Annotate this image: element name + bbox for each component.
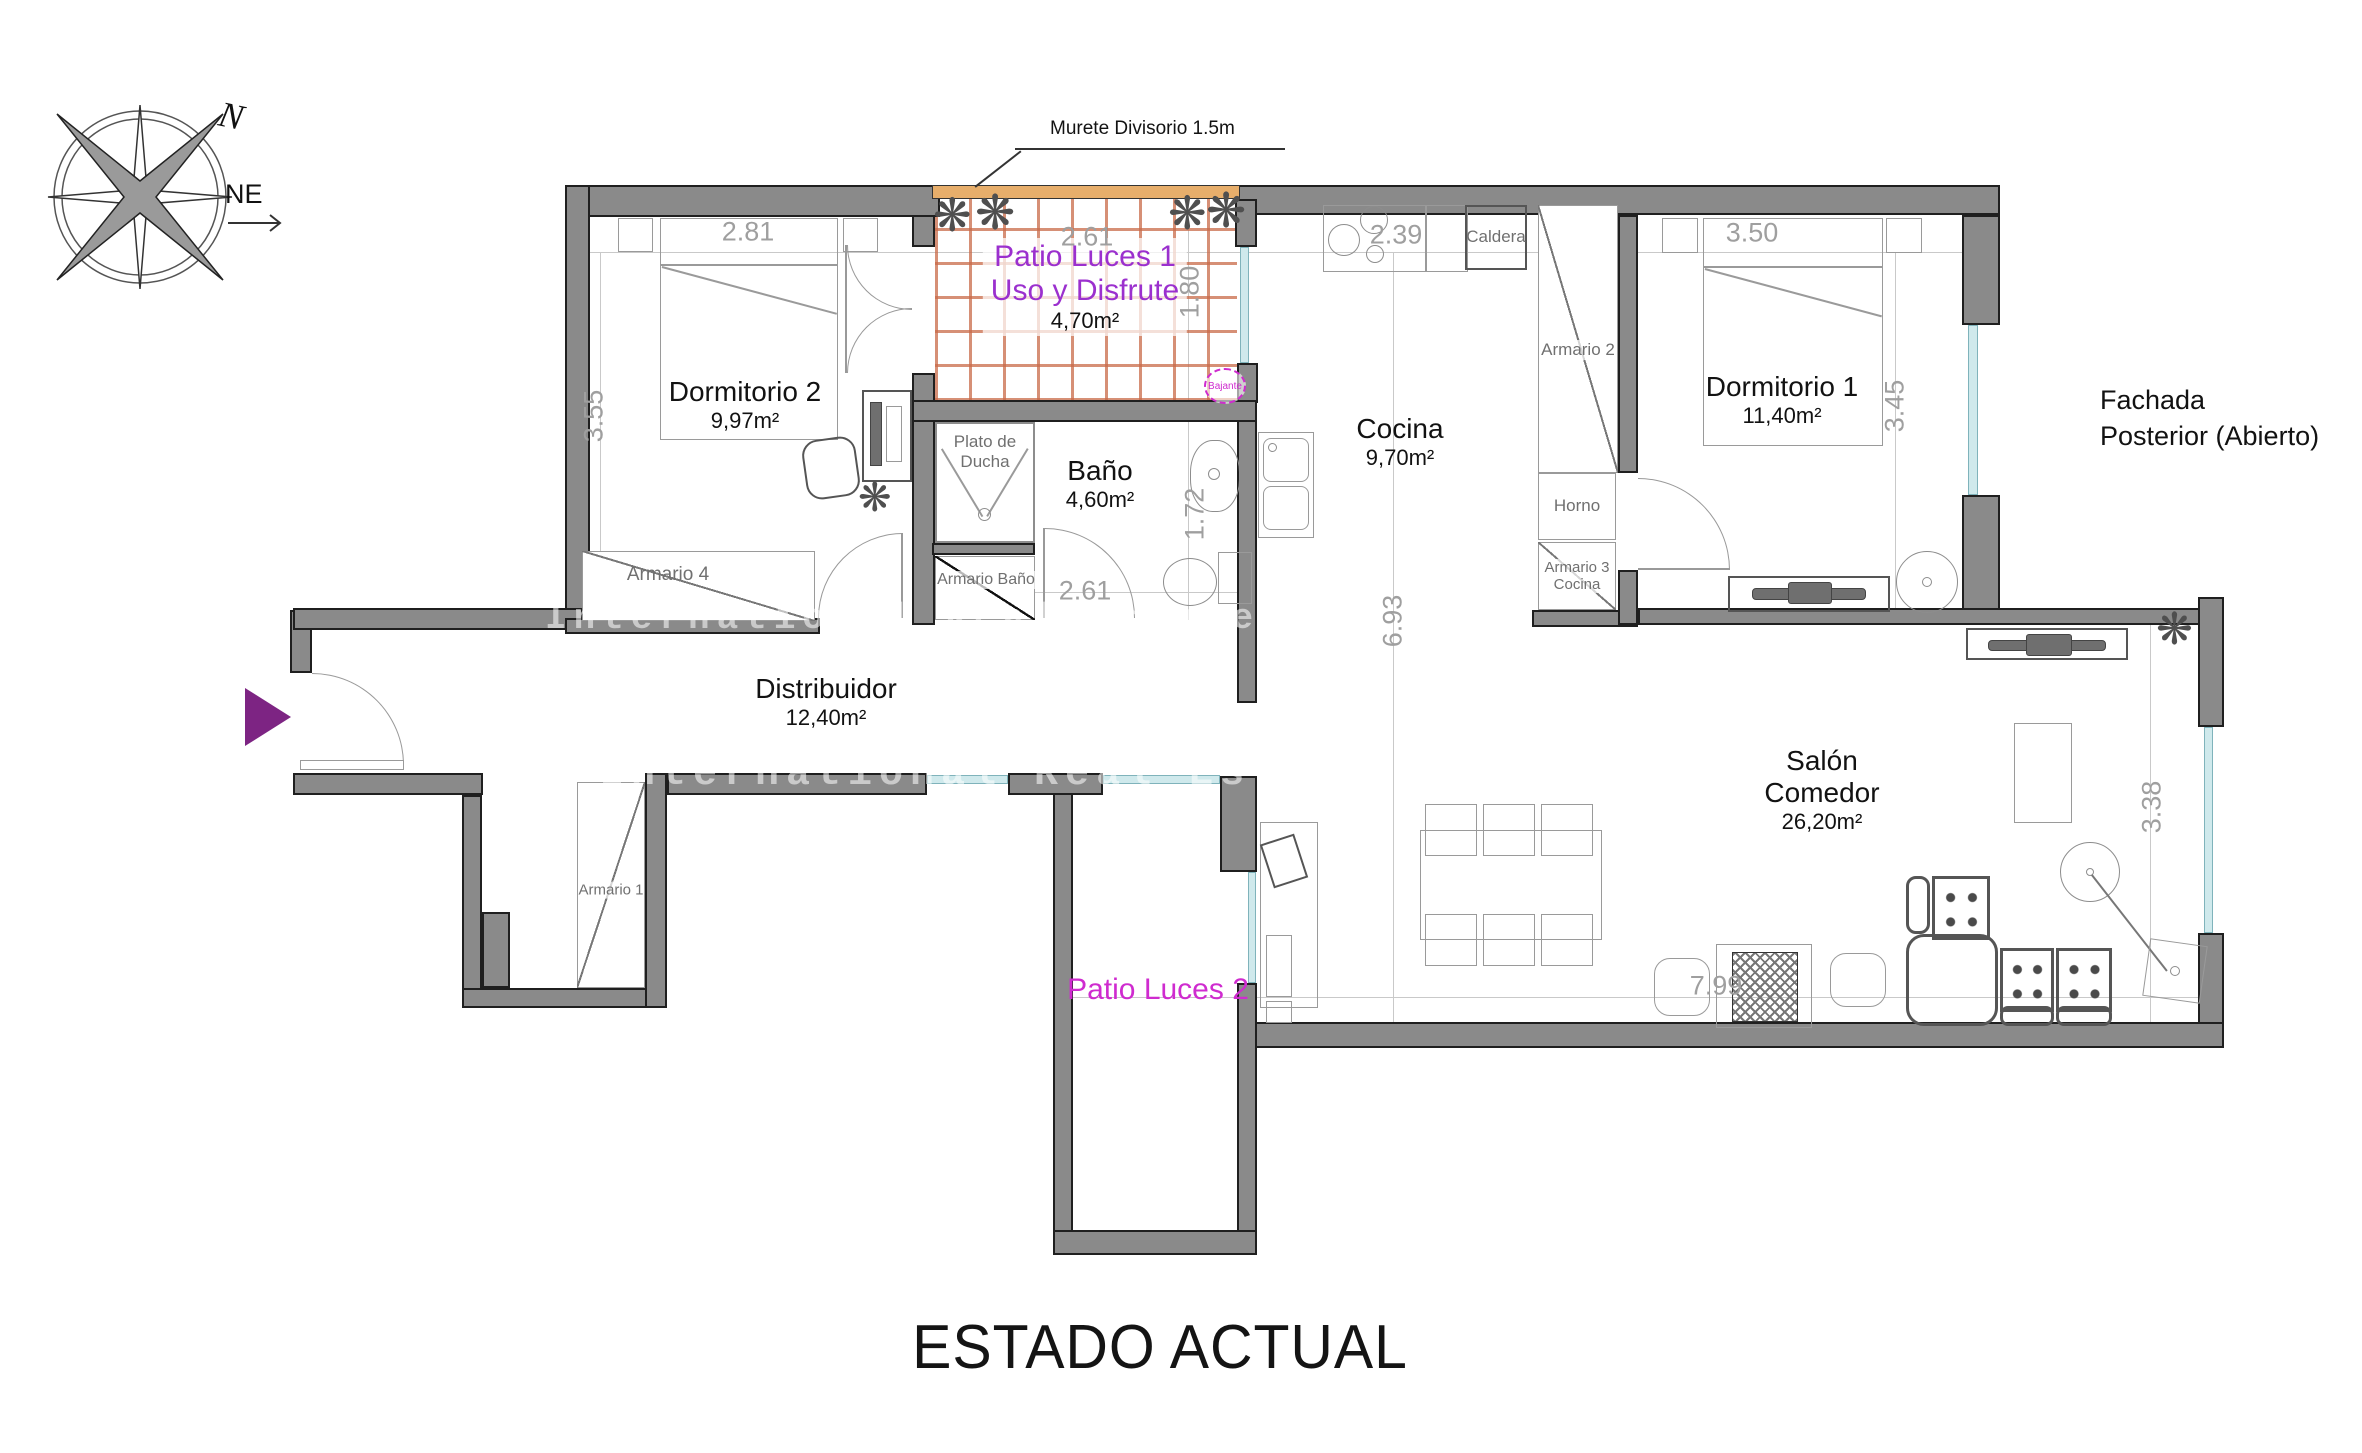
compass-n-label: N: [214, 93, 249, 138]
dorm1-area: 11,40m²: [1706, 403, 1858, 429]
compass-rose: N NE: [35, 55, 300, 305]
window-salon: [2204, 727, 2213, 933]
armario-2-diagonal: [1538, 205, 1618, 473]
salon-name-line2: Comedor: [1764, 777, 1879, 809]
nightstand: [1662, 218, 1698, 253]
wall-segment: [1053, 775, 1073, 1255]
dorm2-label: Dormitorio 2 9,97m²: [669, 376, 821, 434]
page-title: ESTADO ACTUAL: [875, 1312, 1445, 1383]
plant-icon: ❋: [2156, 608, 2193, 652]
wall-segment: [912, 215, 935, 247]
tv-base: [1788, 582, 1832, 604]
armario-3-label-line1: Armario 3: [1544, 559, 1609, 576]
dim-cocina-vert: 6.93: [1378, 595, 1409, 648]
armario-bano-label: Armario Baño: [937, 571, 1035, 589]
bed-sheet-line: [660, 264, 838, 266]
desk-monitor: [870, 402, 882, 466]
cocina-area: 9,70m²: [1356, 445, 1443, 471]
dorm1-door-leaf: [1638, 568, 1730, 570]
distribuidor-name: Distribuidor: [755, 673, 897, 705]
patio2-name: Patio Luces 2: [1067, 973, 1249, 1007]
bano-name: Baño: [1066, 455, 1134, 487]
french-door-arc: [847, 245, 912, 310]
dim-salon-right: 3.38: [2137, 781, 2168, 834]
watermark: International Real Estate: [600, 752, 1375, 797]
wall-segment: [2198, 597, 2224, 727]
bano-area: 4,60m²: [1066, 487, 1134, 513]
entrance-door-leaf: [300, 760, 404, 770]
bed-sheet-line: [1703, 266, 1883, 268]
wall-segment: [1618, 570, 1638, 625]
wall-segment: [932, 543, 1035, 555]
fachada-note: Fachada Posterior (Abierto): [2100, 382, 2319, 455]
round-side-table-dot: [1922, 577, 1932, 587]
armario-3-label-line2: Cocina: [1554, 576, 1601, 593]
plant-icon: ❋: [975, 190, 1015, 238]
wall-segment: [1237, 983, 1257, 1255]
salon-name-line1: Salón: [1764, 745, 1879, 777]
dorm1-name: Dormitorio 1: [1706, 371, 1858, 403]
lamp-base-dot: [2170, 966, 2180, 976]
wall-segment: [293, 773, 483, 795]
dorm2-area: 9,97m²: [669, 408, 821, 434]
wall-segment: [645, 773, 667, 1008]
dim-dorm2-left: 3.55: [579, 390, 610, 443]
dorm1-door-arc: [1638, 478, 1730, 570]
sofa-seat: [2000, 948, 2054, 1012]
bano-label: Baño 4,60m²: [1066, 455, 1134, 513]
caldera-label: Caldera: [1466, 227, 1526, 247]
french-door-leaf: [845, 245, 847, 373]
murete-leader-line: [1015, 148, 1285, 150]
kitchen-sink-basin: [1263, 486, 1309, 530]
dim-patio1-right: 1.80: [1175, 266, 1206, 319]
dorm2-name: Dormitorio 2: [669, 376, 821, 408]
dim-patio1-top: 2.61: [1061, 222, 1114, 253]
toilet-tank: [1218, 552, 1252, 604]
desk-keyboard: [886, 406, 902, 462]
floor-plan: N NE: [0, 0, 2362, 1453]
fachada-line1: Fachada: [2100, 385, 2205, 415]
counter-divider: [1425, 205, 1427, 272]
nightstand: [618, 218, 653, 252]
plant-icon: ❋: [1206, 188, 1246, 236]
compass-ne-label: NE: [225, 179, 263, 209]
plant-icon: ❋: [933, 192, 972, 238]
entrance-arrow: [245, 688, 291, 746]
armario-3-label: Armario 3 Cocina: [1544, 559, 1609, 593]
shower-label-line1: Plato de: [954, 432, 1016, 451]
shower-label: Plato de Ducha: [954, 432, 1016, 472]
sofa-front: [2000, 1006, 2054, 1026]
desk-chair: [800, 435, 862, 502]
plant-icon: ❋: [858, 478, 892, 518]
patio1-label: Patio Luces 1 Uso y Disfrute 4,70m²: [983, 238, 1187, 336]
fachada-line2: Posterior (Abierto): [2100, 421, 2319, 451]
sink-tap: [1268, 443, 1277, 452]
patio1-area: 4,70m²: [991, 308, 1179, 334]
wall-segment: [293, 608, 583, 630]
sofa-seat: [2056, 948, 2112, 1012]
distribuidor-area: 12,40m²: [755, 705, 897, 731]
cocina-label: Cocina 9,70m²: [1356, 413, 1443, 471]
window-patio1-kitchen: [1240, 247, 1249, 363]
window-dorm1: [1968, 325, 1978, 495]
dim-dorm1-top: 3.50: [1726, 218, 1779, 249]
wall-segment: [565, 185, 940, 217]
wall-segment: [1618, 215, 1638, 473]
wall-segment: [1053, 1230, 1257, 1255]
entrance-door-arc: [312, 673, 404, 765]
desk-shelf: [1266, 935, 1292, 997]
distribuidor-label: Distribuidor 12,40m²: [755, 673, 897, 731]
stove-burner: [1328, 224, 1360, 256]
dorm1-label: Dormitorio 1 11,40m²: [1706, 371, 1858, 429]
window-patio2: [1248, 872, 1256, 983]
cocina-name: Cocina: [1356, 413, 1443, 445]
french-door-arc: [847, 308, 912, 373]
nightstand: [1886, 218, 1922, 253]
sofa-corner: [1906, 934, 1998, 1026]
tv-base: [2026, 634, 2072, 656]
dim-dorm1-right: 3.45: [1880, 380, 1911, 433]
sofa-seat: [1932, 876, 1990, 940]
murete-leader-diag: [975, 150, 1022, 187]
sofa-front: [2056, 1006, 2112, 1026]
shower-label-line2: Ducha: [960, 452, 1009, 471]
wall-segment: [462, 795, 482, 1007]
bajante-badge: Bajante: [1204, 368, 1246, 404]
armario-4-label: Armario 4: [627, 564, 709, 586]
patio2-label: Patio Luces 2: [1067, 973, 1249, 1007]
stool: [1830, 953, 1886, 1007]
wall-segment: [1962, 495, 2000, 615]
desk-shelf: [1266, 1001, 1292, 1023]
dim-bano-right: 1.72: [1180, 488, 1211, 541]
dim-dorm2-top: 2.81: [722, 217, 775, 248]
wall-segment: [482, 912, 510, 988]
wall-segment: [912, 400, 1257, 422]
sink-drain: [1208, 468, 1220, 480]
armario-2-label: Armario 2: [1541, 340, 1615, 360]
salon-area: 26,20m²: [1764, 809, 1879, 835]
dining-table: [1420, 830, 1602, 940]
sofa-armrest: [1906, 876, 1930, 934]
plant-icon: ❋: [1168, 190, 1207, 236]
wall-segment: [1962, 215, 2000, 325]
dim-cocina-top: 2.39: [1370, 220, 1423, 251]
coffee-table: [2014, 723, 2072, 823]
salon-label: Salón Comedor 26,20m²: [1764, 745, 1879, 835]
patio1-subtitle: Uso y Disfrute: [991, 274, 1179, 308]
wall-segment: [462, 988, 667, 1008]
dim-salon-bottom: 7.99: [1690, 971, 1743, 1002]
horno-label: Horno: [1554, 496, 1600, 516]
nightstand: [843, 218, 878, 252]
armario-1-label: Armario 1: [578, 882, 643, 899]
shower-drain: [978, 508, 991, 521]
murete-note: Murete Divisorio 1.5m: [1050, 118, 1235, 140]
watermark: International Real Estate: [545, 598, 1260, 639]
